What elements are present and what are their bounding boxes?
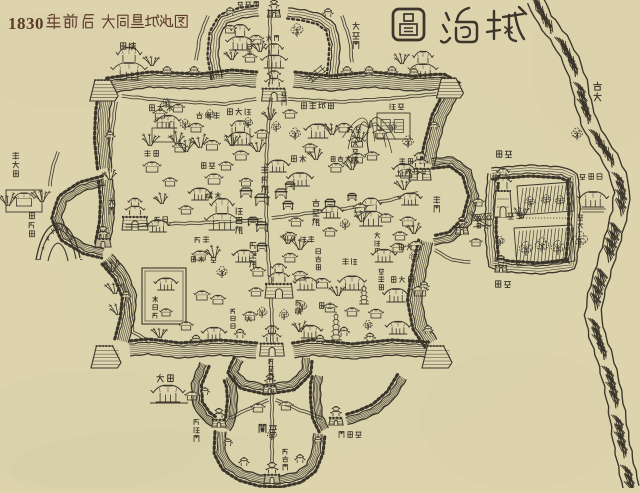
svg-text:1830: 1830 [8, 14, 44, 33]
